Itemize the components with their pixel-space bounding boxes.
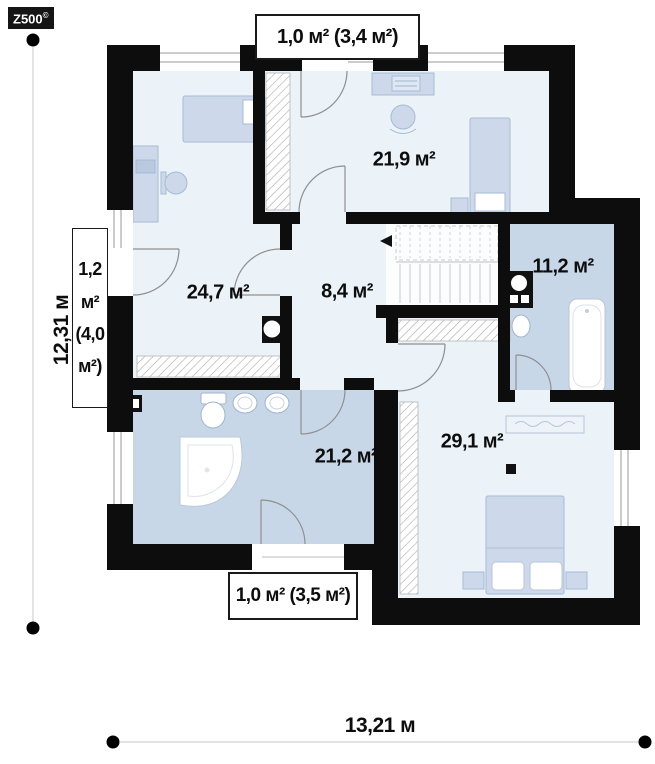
wall-b1: [253, 212, 300, 224]
nightstand-left: [463, 572, 484, 589]
desk-chair: [391, 105, 415, 129]
dresser: [506, 416, 584, 433]
wall-d1: [133, 378, 300, 390]
brand-logo-mark: ©: [43, 11, 49, 20]
wardrobe-bedroom-top-right: [266, 73, 290, 210]
wall-e: [374, 390, 398, 544]
brand-logo-text: Z500: [13, 11, 43, 26]
room-label-bedroom-top-right: 21,9 м²: [373, 149, 435, 172]
wall-d2: [344, 378, 374, 390]
wall-h: [498, 224, 510, 402]
washbasin-bowl: [264, 321, 281, 338]
desk-left: [133, 146, 158, 222]
dim-dot-bottom-left: [27, 622, 40, 635]
dim-dot-top-left: [27, 34, 40, 47]
chimney-block: [506, 464, 516, 474]
dimension-width: 13,21 м: [345, 714, 415, 738]
wall-f: [386, 318, 398, 343]
desk-chair: [165, 172, 187, 194]
wall-g: [376, 305, 510, 318]
bed-pillow: [475, 193, 505, 211]
bed-pillow-left: [492, 562, 524, 590]
sink-1: [233, 393, 257, 413]
room-label-bedroom-left: 24,7 м²: [187, 282, 249, 305]
dim-dot-bottom-start: [107, 736, 120, 749]
wall-b2: [346, 212, 549, 224]
toilet-valve: [511, 275, 527, 291]
nightstand: [451, 198, 468, 213]
balcony-left-label: 1,2 м² (4,0 м²): [72, 228, 108, 408]
balcony-left-line-4: м²): [78, 350, 102, 382]
desk-monitor: [136, 160, 155, 173]
dim-dot-bottom-end: [639, 736, 652, 749]
balcony-top-label: 1,0 м² (3,4 м²): [255, 14, 420, 60]
nightstand-right: [566, 572, 587, 589]
room-label-bedroom-bottom: 29,1 м²: [441, 431, 503, 454]
balcony-left-line-1: 1,2: [78, 253, 102, 285]
tub-drain: [205, 468, 210, 473]
wardrobe-bedroom-bottom-left: [400, 402, 418, 594]
room-label-hall: 8,4 м²: [321, 281, 373, 304]
wall-c1: [280, 224, 292, 250]
wall-a: [253, 71, 265, 212]
bidet: [512, 315, 530, 337]
wall-i2: [550, 390, 614, 402]
brand-logo: Z500©: [8, 7, 54, 29]
balcony-left-line-3: (4,0: [75, 318, 104, 350]
wall-c2: [280, 296, 292, 390]
stairwell-floor: [386, 224, 498, 305]
room-label-bathroom-left: 21,2 м²: [315, 446, 377, 469]
sink-2: [265, 393, 289, 413]
balcony-bottom-label: 1,0 м² (3,5 м²): [228, 572, 358, 620]
printer: [392, 76, 420, 91]
wardrobe-bedroom-bottom-top: [398, 320, 510, 341]
floorplan-canvas: Z500© 1,0 м² (3,4 м²) 1,0 м² (3,5 м²) 1,…: [0, 0, 655, 764]
toilet-bowl: [201, 402, 225, 428]
dimension-height: 12,31 м: [50, 295, 74, 365]
wall-i1: [498, 390, 515, 402]
bathtub: [569, 299, 605, 393]
room-label-bathroom-right: 11,2 м²: [532, 256, 593, 279]
bed-pillow-right: [530, 562, 562, 590]
wardrobe-bedroom-left: [137, 356, 288, 377]
bathtub-drain: [585, 309, 589, 313]
balcony-left-line-2: м²: [81, 286, 99, 318]
